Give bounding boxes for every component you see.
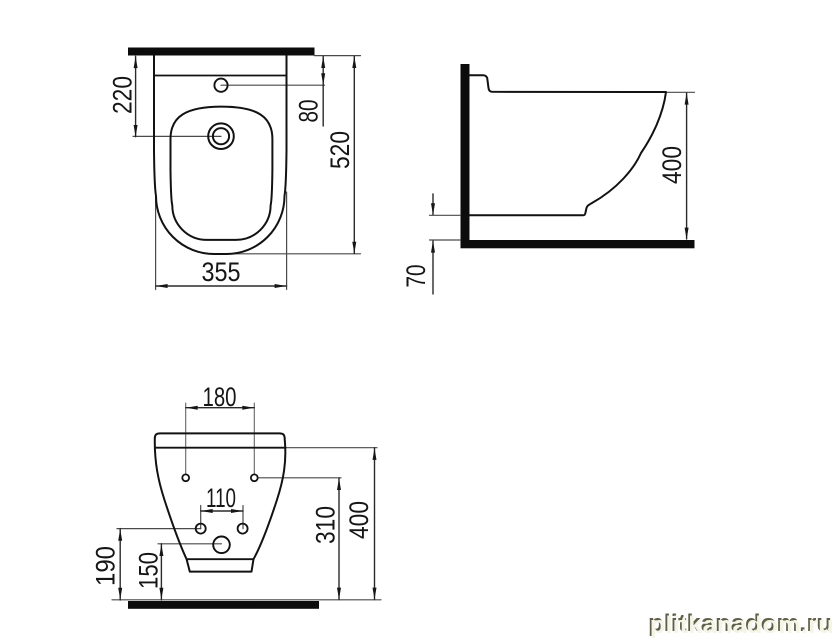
svg-text:180: 180	[203, 382, 237, 412]
svg-text:150: 150	[134, 552, 164, 589]
svg-text:400: 400	[344, 501, 374, 539]
svg-text:520: 520	[325, 131, 355, 169]
svg-text:220: 220	[108, 76, 138, 114]
svg-text:110: 110	[206, 483, 236, 513]
svg-text:355: 355	[202, 257, 241, 287]
svg-text:80: 80	[294, 100, 324, 123]
svg-text:70: 70	[401, 265, 431, 288]
svg-text:310: 310	[311, 506, 341, 544]
svg-text:plitkanadom.ru: plitkanadom.ru	[650, 612, 834, 639]
svg-text:400: 400	[657, 146, 687, 184]
svg-text:190: 190	[91, 546, 121, 586]
